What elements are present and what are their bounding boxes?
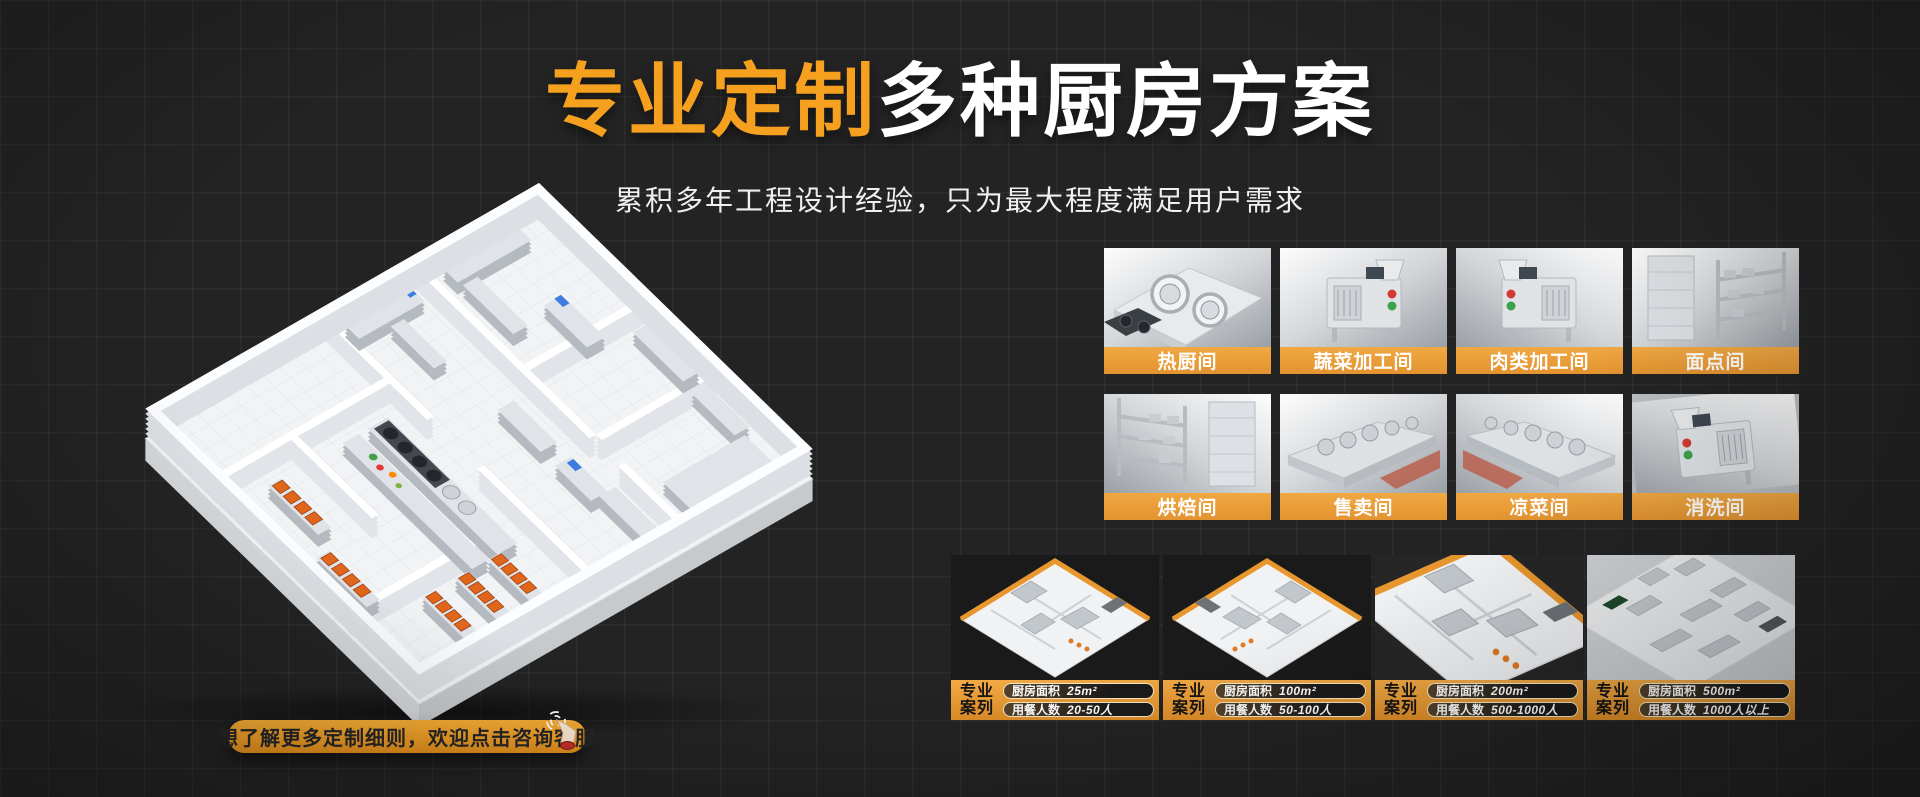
room-label: 烘焙间 — [1104, 493, 1271, 520]
case-info-bar: 专业 案列 厨房面积 500m² 用餐人数 1000人以上 — [1587, 680, 1795, 720]
room-label: 热厨间 — [1104, 347, 1271, 374]
title-rest: 多种厨房方案 — [877, 57, 1375, 146]
case-card-100m2: 专业 案列 厨房面积 100m² 用餐人数 50-100人 — [1163, 555, 1371, 720]
room-photo — [1456, 394, 1623, 493]
case-area-pill: 厨房面积 25m² — [1003, 683, 1154, 699]
case-cards-row: 专业 案列 厨房面积 25m² 用餐人数 20-50人 — [951, 555, 1795, 720]
consult-cta-button[interactable]: 想了解更多定制细则，欢迎点击咨询客服 — [228, 720, 586, 753]
room-photo — [1280, 394, 1447, 493]
room-tiles-grid: 热厨间 蔬菜加工间 肉类加工间 面点间 烘焙间 售卖间 凉菜间 消洗间 — [1104, 248, 1799, 520]
case-area-pill: 厨房面积 500m² — [1639, 683, 1790, 699]
room-photo — [1456, 248, 1623, 347]
banner-stage: 专业定制多种厨房方案 累积多年工程设计经验，只为最大程度满足用户需求 想了解更多… — [0, 0, 1920, 797]
hand-click-icon — [544, 711, 584, 755]
room-tile-dishwashing: 消洗间 — [1632, 394, 1799, 520]
room-label: 消洗间 — [1632, 493, 1799, 520]
consult-cta-label: 想了解更多定制细则，欢迎点击咨询客服 — [218, 722, 596, 751]
case-diners-pill: 用餐人数 20-50人 — [1003, 702, 1154, 718]
case-badge: 专业 案列 — [1592, 683, 1634, 718]
case-plan-image — [951, 555, 1159, 680]
room-tile-meat-processing: 肉类加工间 — [1456, 248, 1623, 374]
case-diners-pill: 用餐人数 1000人以上 — [1639, 702, 1790, 718]
room-photo — [1280, 248, 1447, 347]
case-info-bar: 专业 案列 厨房面积 25m² 用餐人数 20-50人 — [951, 680, 1159, 720]
page-title: 专业定制多种厨房方案 — [0, 58, 1920, 146]
room-label: 蔬菜加工间 — [1280, 347, 1447, 374]
case-card-500m2: 专业 案列 厨房面积 500m² 用餐人数 1000人以上 — [1587, 555, 1795, 720]
kitchen-floorplan-illustration — [46, 183, 846, 743]
room-photo — [1104, 248, 1271, 347]
room-label: 售卖间 — [1280, 493, 1447, 520]
room-tile-pastry: 面点间 — [1632, 248, 1799, 374]
room-tile-vegetable-processing: 蔬菜加工间 — [1280, 248, 1447, 374]
room-label: 面点间 — [1632, 347, 1799, 374]
case-diners-pill: 用餐人数 500-1000人 — [1427, 702, 1578, 718]
room-photo — [1104, 394, 1271, 493]
room-label: 凉菜间 — [1456, 493, 1623, 520]
room-tile-hot-kitchen: 热厨间 — [1104, 248, 1271, 374]
title-highlight: 专业定制 — [545, 57, 877, 146]
room-photo — [1632, 248, 1799, 347]
case-plan-image — [1375, 555, 1583, 680]
case-card-25m2: 专业 案列 厨房面积 25m² 用餐人数 20-50人 — [951, 555, 1159, 720]
case-badge: 专业 案列 — [956, 683, 998, 718]
case-area-pill: 厨房面积 200m² — [1427, 683, 1578, 699]
case-badge: 专业 案列 — [1380, 683, 1422, 718]
case-diners-pill: 用餐人数 50-100人 — [1215, 702, 1366, 718]
room-photo — [1632, 394, 1799, 493]
case-card-200m2: 专业 案列 厨房面积 200m² 用餐人数 500-1000人 — [1375, 555, 1583, 720]
case-info-bar: 专业 案列 厨房面积 100m² 用餐人数 50-100人 — [1163, 680, 1371, 720]
case-area-pill: 厨房面积 100m² — [1215, 683, 1366, 699]
case-badge: 专业 案列 — [1168, 683, 1210, 718]
case-info-bar: 专业 案列 厨房面积 200m² 用餐人数 500-1000人 — [1375, 680, 1583, 720]
case-plan-image — [1587, 555, 1795, 680]
room-tile-cold-dishes: 凉菜间 — [1456, 394, 1623, 520]
room-tile-baking: 烘焙间 — [1104, 394, 1271, 520]
case-plan-image — [1163, 555, 1371, 680]
room-tile-sales: 售卖间 — [1280, 394, 1447, 520]
room-label: 肉类加工间 — [1456, 347, 1623, 374]
